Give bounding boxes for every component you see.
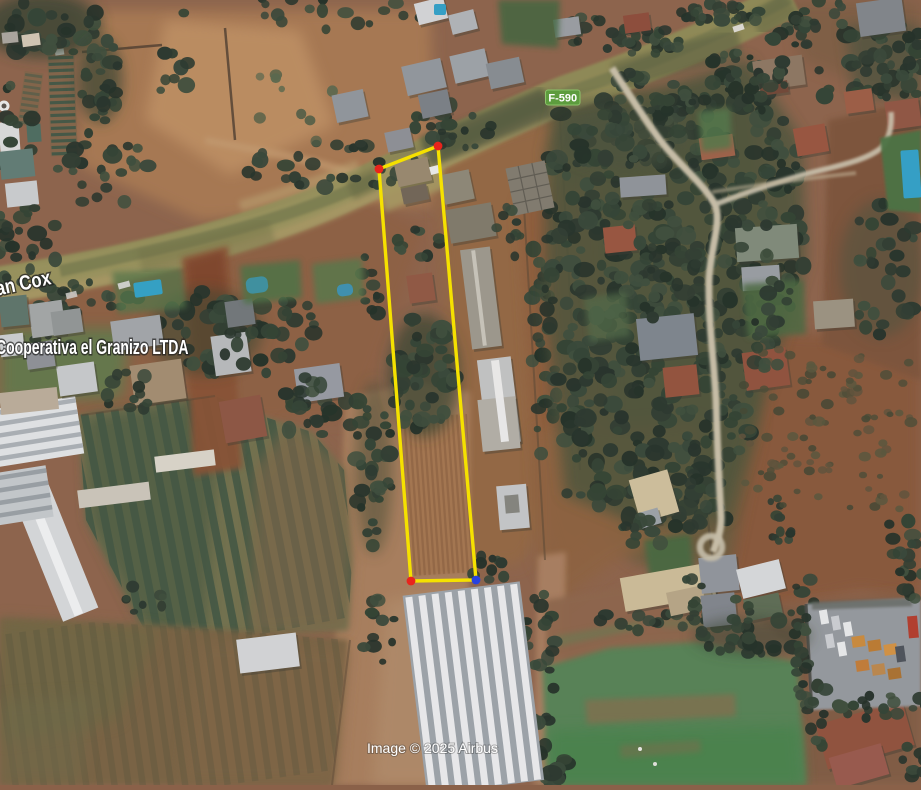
svg-text:Image © 2025 Airbus: Image © 2025 Airbus [367, 740, 498, 756]
svg-text:Cooperativa el Granizo LTDA: Cooperativa el Granizo LTDA [0, 335, 189, 358]
svg-text:F-590: F-590 [548, 93, 577, 105]
